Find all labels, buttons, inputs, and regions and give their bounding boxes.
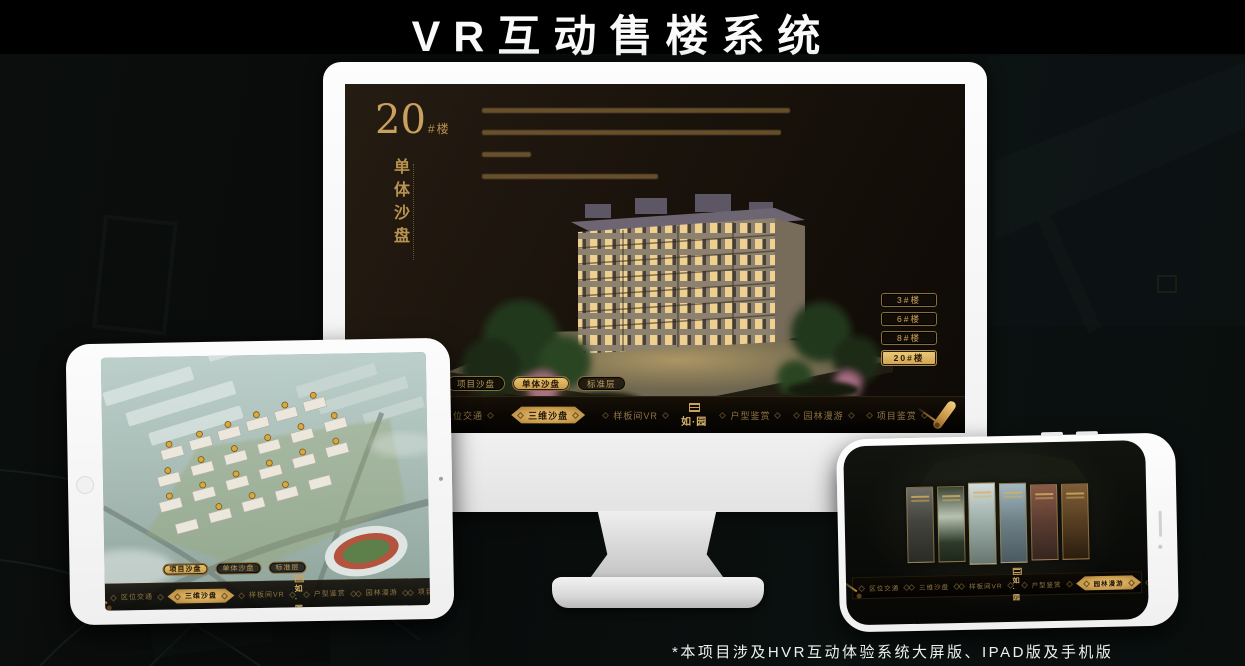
heading-subtitle: 单体沙盘 xyxy=(387,158,411,250)
nav-item-project-gallery[interactable]: 项目鉴赏 xyxy=(867,409,927,422)
gallery-panel[interactable] xyxy=(968,482,997,565)
brand-logo: 如·园 xyxy=(294,575,304,611)
subtab-single-sandbox[interactable]: 单体沙盘 xyxy=(215,562,261,575)
subtab-standard-floor[interactable]: 标准层 xyxy=(268,561,306,574)
page-title: VR互动售楼系统 xyxy=(0,2,1245,64)
brand-logo: 如·园 xyxy=(681,403,707,428)
tablet-device: 项目沙盘 单体沙盘 标准层 区位交通 三维沙盘 样板间VR 如·园 户型鉴赏 园… xyxy=(66,338,455,626)
subtab-standard-floor[interactable]: 标准层 xyxy=(577,376,626,391)
phone-device: 区位交通 三维沙盘 样板间VR 如·园 户型鉴赏 园林漫游 项目鉴赏 xyxy=(836,432,1179,632)
nav-item-3d-sandbox[interactable]: 三维沙盘 xyxy=(163,587,239,604)
heading-deco-line xyxy=(413,164,414,260)
camera-icon xyxy=(1158,544,1162,548)
seal-icon xyxy=(689,403,700,412)
nav-item-garden-tour[interactable]: 园林漫游 xyxy=(356,587,408,598)
subtab-project-sandbox[interactable]: 项目沙盘 xyxy=(447,376,505,391)
monitor-stand-neck xyxy=(588,511,726,581)
nav-item-location[interactable]: 区位交通 xyxy=(859,582,909,593)
nav-item-project-gallery[interactable]: 项目鉴赏 xyxy=(408,587,431,598)
volume-button xyxy=(1041,432,1063,436)
tablet-screen: 项目沙盘 单体沙盘 标准层 区位交通 三维沙盘 样板间VR 如·园 户型鉴赏 园… xyxy=(101,352,430,611)
gallery-panel[interactable] xyxy=(999,483,1028,564)
nav-item-project-gallery[interactable]: 项目鉴赏 xyxy=(1145,576,1148,587)
floor-button-20[interactable]: 20#楼 xyxy=(881,350,937,366)
tablet-subtabs: 项目沙盘 单体沙盘 标准层 xyxy=(162,561,306,576)
gallery-panel[interactable] xyxy=(906,487,935,564)
nav-item-floorplans[interactable]: 户型鉴赏 xyxy=(1022,579,1072,590)
screen-heading: 20#楼 xyxy=(375,100,451,140)
home-button[interactable] xyxy=(76,475,94,493)
nav-item-model-room-vr[interactable]: 样板间VR xyxy=(239,589,295,600)
nav-item-garden-tour[interactable]: 园林漫游 xyxy=(1071,574,1145,592)
nav-item-garden-tour[interactable]: 园林漫游 xyxy=(794,409,854,422)
floor-button-6[interactable]: 6#楼 xyxy=(881,312,937,326)
seal-icon xyxy=(1012,567,1021,574)
footnote: *本项目涉及HVR互动体验系统大屏版、IPAD版及手机版 xyxy=(672,641,1113,662)
camera-icon xyxy=(439,476,443,480)
nav-item-location[interactable]: 区位交通 xyxy=(111,592,163,603)
floor-button-8[interactable]: 8#楼 xyxy=(881,331,937,345)
tablet-navbar: 区位交通 三维沙盘 样板间VR 如·园 户型鉴赏 园林漫游 项目鉴赏 xyxy=(105,578,430,611)
gallery-panel[interactable] xyxy=(937,486,966,563)
nav-item-floorplans[interactable]: 户型鉴赏 xyxy=(720,409,780,422)
nav-item-floorplans[interactable]: 户型鉴赏 xyxy=(304,588,356,599)
gallery-panel[interactable] xyxy=(1030,484,1059,561)
phone-screen: 区位交通 三维沙盘 样板间VR 如·园 户型鉴赏 园林漫游 项目鉴赏 xyxy=(843,440,1149,625)
nav-item-model-room-vr[interactable]: 样板间VR xyxy=(603,409,668,422)
monitor-subtabs: 项目沙盘 单体沙盘 标准层 xyxy=(447,376,626,391)
seal-icon xyxy=(294,575,303,582)
subtab-single-sandbox[interactable]: 单体沙盘 xyxy=(512,376,570,391)
scroll-icon[interactable] xyxy=(931,399,957,430)
floor-button-3[interactable]: 3#楼 xyxy=(881,293,937,307)
stage: VR互动售楼系统 20#楼 单体沙盘 xyxy=(0,0,1245,666)
speaker-icon xyxy=(1158,510,1162,536)
gallery-panel[interactable] xyxy=(1061,483,1090,560)
floor-button-group: 3#楼 6#楼 8#楼 20#楼 xyxy=(881,293,937,366)
phone-notch xyxy=(1150,481,1170,577)
nav-item-model-room-vr[interactable]: 样板间VR xyxy=(959,580,1013,591)
power-button xyxy=(1076,431,1098,435)
heading-number: 20 xyxy=(375,97,426,143)
heading-suffix: #楼 xyxy=(428,122,451,136)
nav-item-3d-sandbox[interactable]: 三维沙盘 xyxy=(506,406,590,425)
subtab-project-sandbox[interactable]: 项目沙盘 xyxy=(162,563,208,576)
nav-item-3d-sandbox[interactable]: 三维沙盘 xyxy=(909,581,959,592)
monitor-stand-base xyxy=(552,577,764,608)
gallery-panels xyxy=(906,483,1090,566)
